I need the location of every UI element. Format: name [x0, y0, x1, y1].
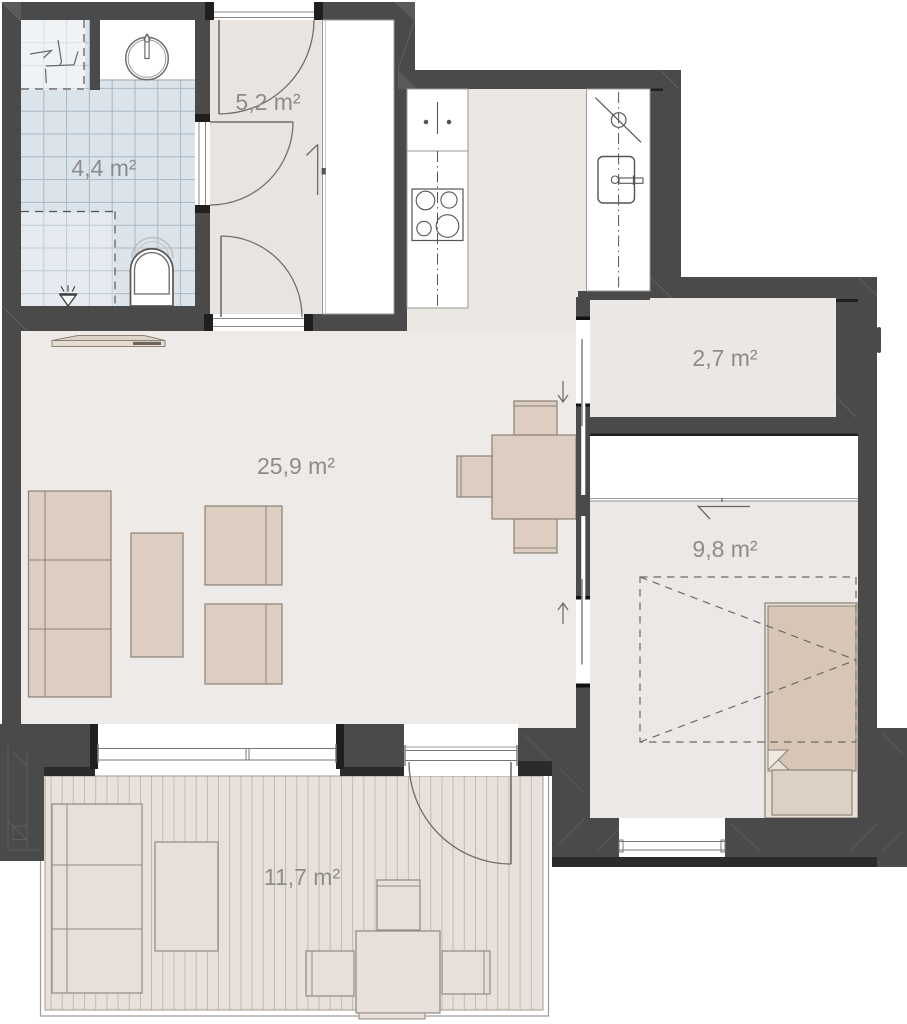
- svg-text:2,7 m²: 2,7 m²: [692, 345, 758, 371]
- svg-text:4,4 m²: 4,4 m²: [71, 155, 137, 181]
- svg-text:11,7 m²: 11,7 m²: [264, 864, 341, 890]
- svg-text:9,8 m²: 9,8 m²: [692, 536, 758, 562]
- svg-text:25,9 m²: 25,9 m²: [257, 453, 335, 479]
- svg-text:5,2 m²: 5,2 m²: [235, 89, 301, 115]
